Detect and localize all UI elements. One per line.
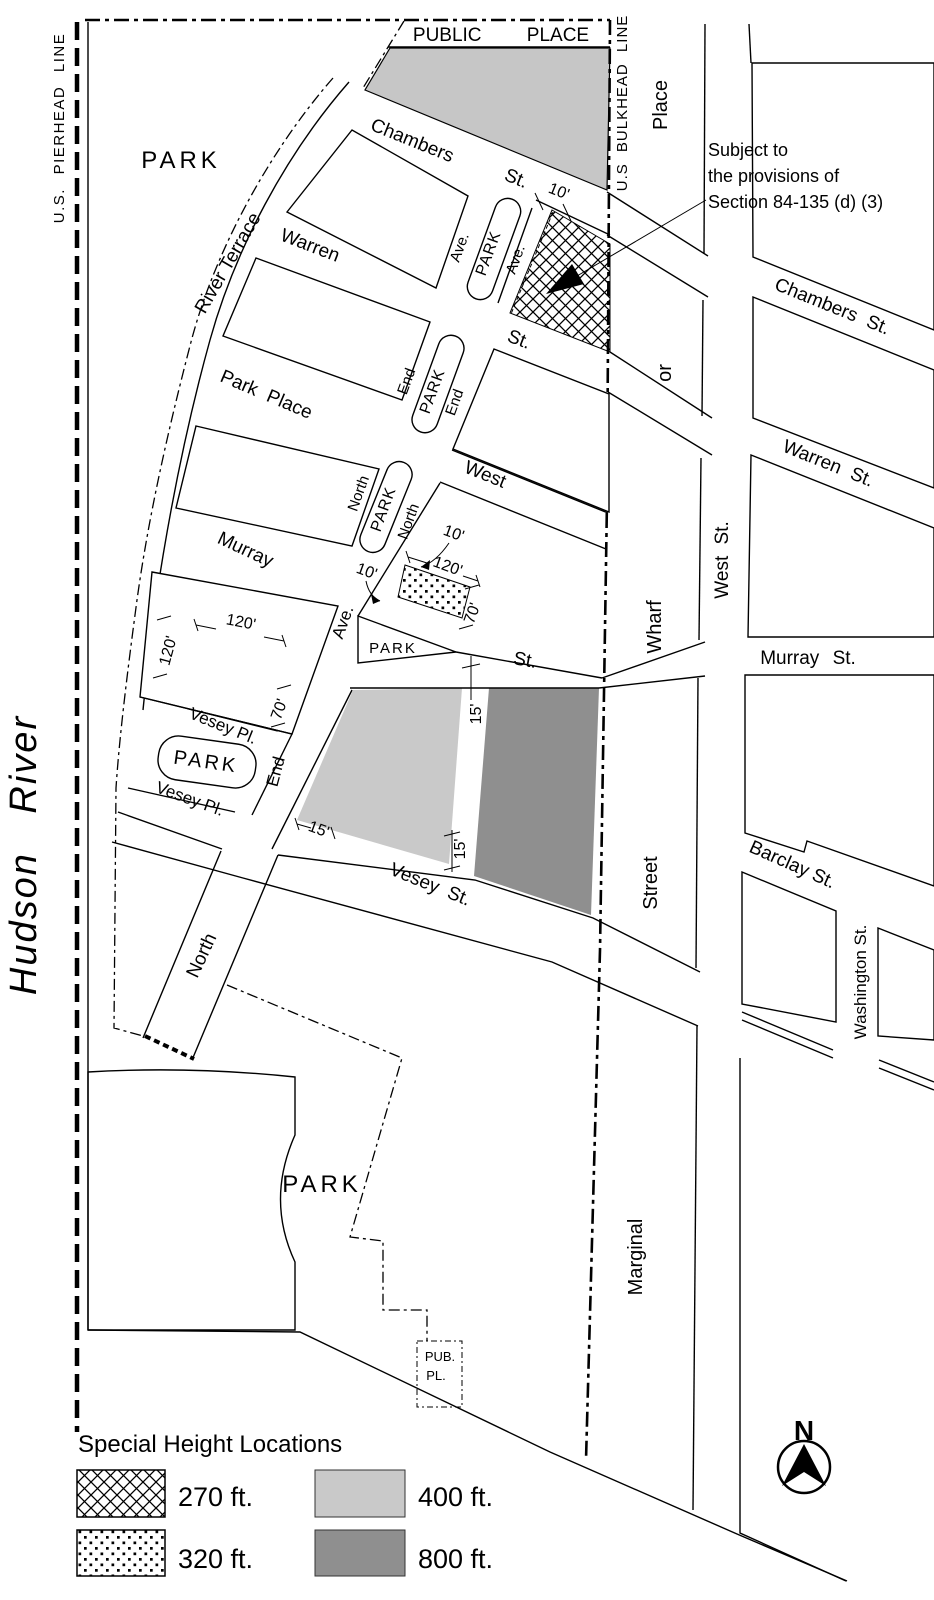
pierhead-label: U.S. PIERHEAD LINE — [51, 33, 68, 224]
street-label-murray-st: Murray St. — [760, 648, 856, 669]
city-block — [176, 426, 379, 546]
legend-title: Special Height Locations — [78, 1431, 342, 1458]
legend-swatch-800 — [315, 1530, 405, 1576]
north-label: North — [183, 930, 222, 981]
street-label-st: St. — [504, 326, 533, 354]
street-label-west-st: West St. — [712, 521, 733, 598]
legend-swatch-320 — [77, 1530, 165, 1576]
vesey-north-curb — [118, 812, 222, 849]
legend-label-270: 270 ft. — [178, 1482, 253, 1512]
legend-label-400: 400 ft. — [418, 1482, 493, 1512]
east-street-network — [599, 24, 934, 1581]
legend-label-320: 320 ft. — [178, 1544, 253, 1574]
zoning-map-page: Subject to the provisions of Section 84-… — [0, 0, 934, 1600]
park-boundary-curve — [114, 78, 333, 1036]
street-label-st: St. — [512, 648, 539, 673]
strip-label-wharf: Wharf — [644, 600, 666, 654]
dim-15ft: 15' — [468, 704, 485, 725]
park-label: PARK — [282, 1171, 362, 1198]
legend-swatch-400 — [315, 1470, 405, 1517]
north-arrow: N — [778, 1415, 830, 1493]
end-label: End — [263, 755, 289, 789]
street-label-murray: Murray — [214, 528, 277, 572]
north-arrow-pointer — [782, 1444, 826, 1486]
hudson-river-label: Hudson River — [3, 715, 45, 995]
pub-pl-label-2: PL. — [426, 1368, 446, 1383]
dim-10ft: 10' — [546, 180, 572, 204]
dim-10ft: 10' — [354, 560, 379, 583]
dim-10ft: 10' — [441, 522, 466, 545]
city-block — [453, 349, 609, 512]
legend-swatch-270 — [77, 1470, 165, 1517]
note-line-2: the provisions of — [708, 166, 840, 186]
zoning-map: Subject to the provisions of Section 84-… — [0, 0, 934, 1600]
street-label-washington-st: Washington St. — [851, 925, 870, 1040]
legend: Special Height Locations 270 ft. 320 ft.… — [77, 1431, 493, 1576]
pub-pl-label-1: PUB. — [425, 1349, 455, 1364]
bulkhead-label: U.S BULKHEAD LINE — [614, 15, 631, 192]
pier-terminal-block — [88, 1070, 295, 1330]
city-block — [878, 928, 934, 1040]
city-block — [742, 872, 836, 1022]
park-boundary-south — [227, 985, 427, 1341]
street-label-park-place: Park Place — [217, 366, 315, 424]
note-line-1: Subject to — [708, 140, 788, 160]
zone-800ft — [474, 688, 599, 915]
street-label-vesey-st: Vesey St. — [387, 859, 474, 910]
bpc-street-network — [88, 47, 847, 1581]
street-label-st: St. — [501, 165, 530, 193]
park-label: PARK — [141, 147, 221, 174]
strip-label-street: Street — [640, 856, 662, 910]
public-place-label: PUBLIC PLACE — [413, 25, 589, 46]
strip-label-place: Place — [650, 80, 672, 130]
ave-end-cap — [145, 1036, 194, 1059]
legend-label-800: 800 ft. — [418, 1544, 493, 1574]
park-label: PARK — [369, 640, 417, 657]
west-st-east-curb-top — [749, 24, 751, 63]
west-st-east-curb-bottom — [740, 1058, 846, 1581]
dim-15ft: 15' — [452, 839, 469, 860]
narrow-street-line — [742, 1020, 833, 1058]
strip-label-marginal: Marginal — [625, 1219, 647, 1296]
note-line-3: Section 84-135 (d) (3) — [708, 192, 883, 212]
city-block — [748, 455, 934, 637]
strip-label-or: or — [654, 364, 676, 382]
